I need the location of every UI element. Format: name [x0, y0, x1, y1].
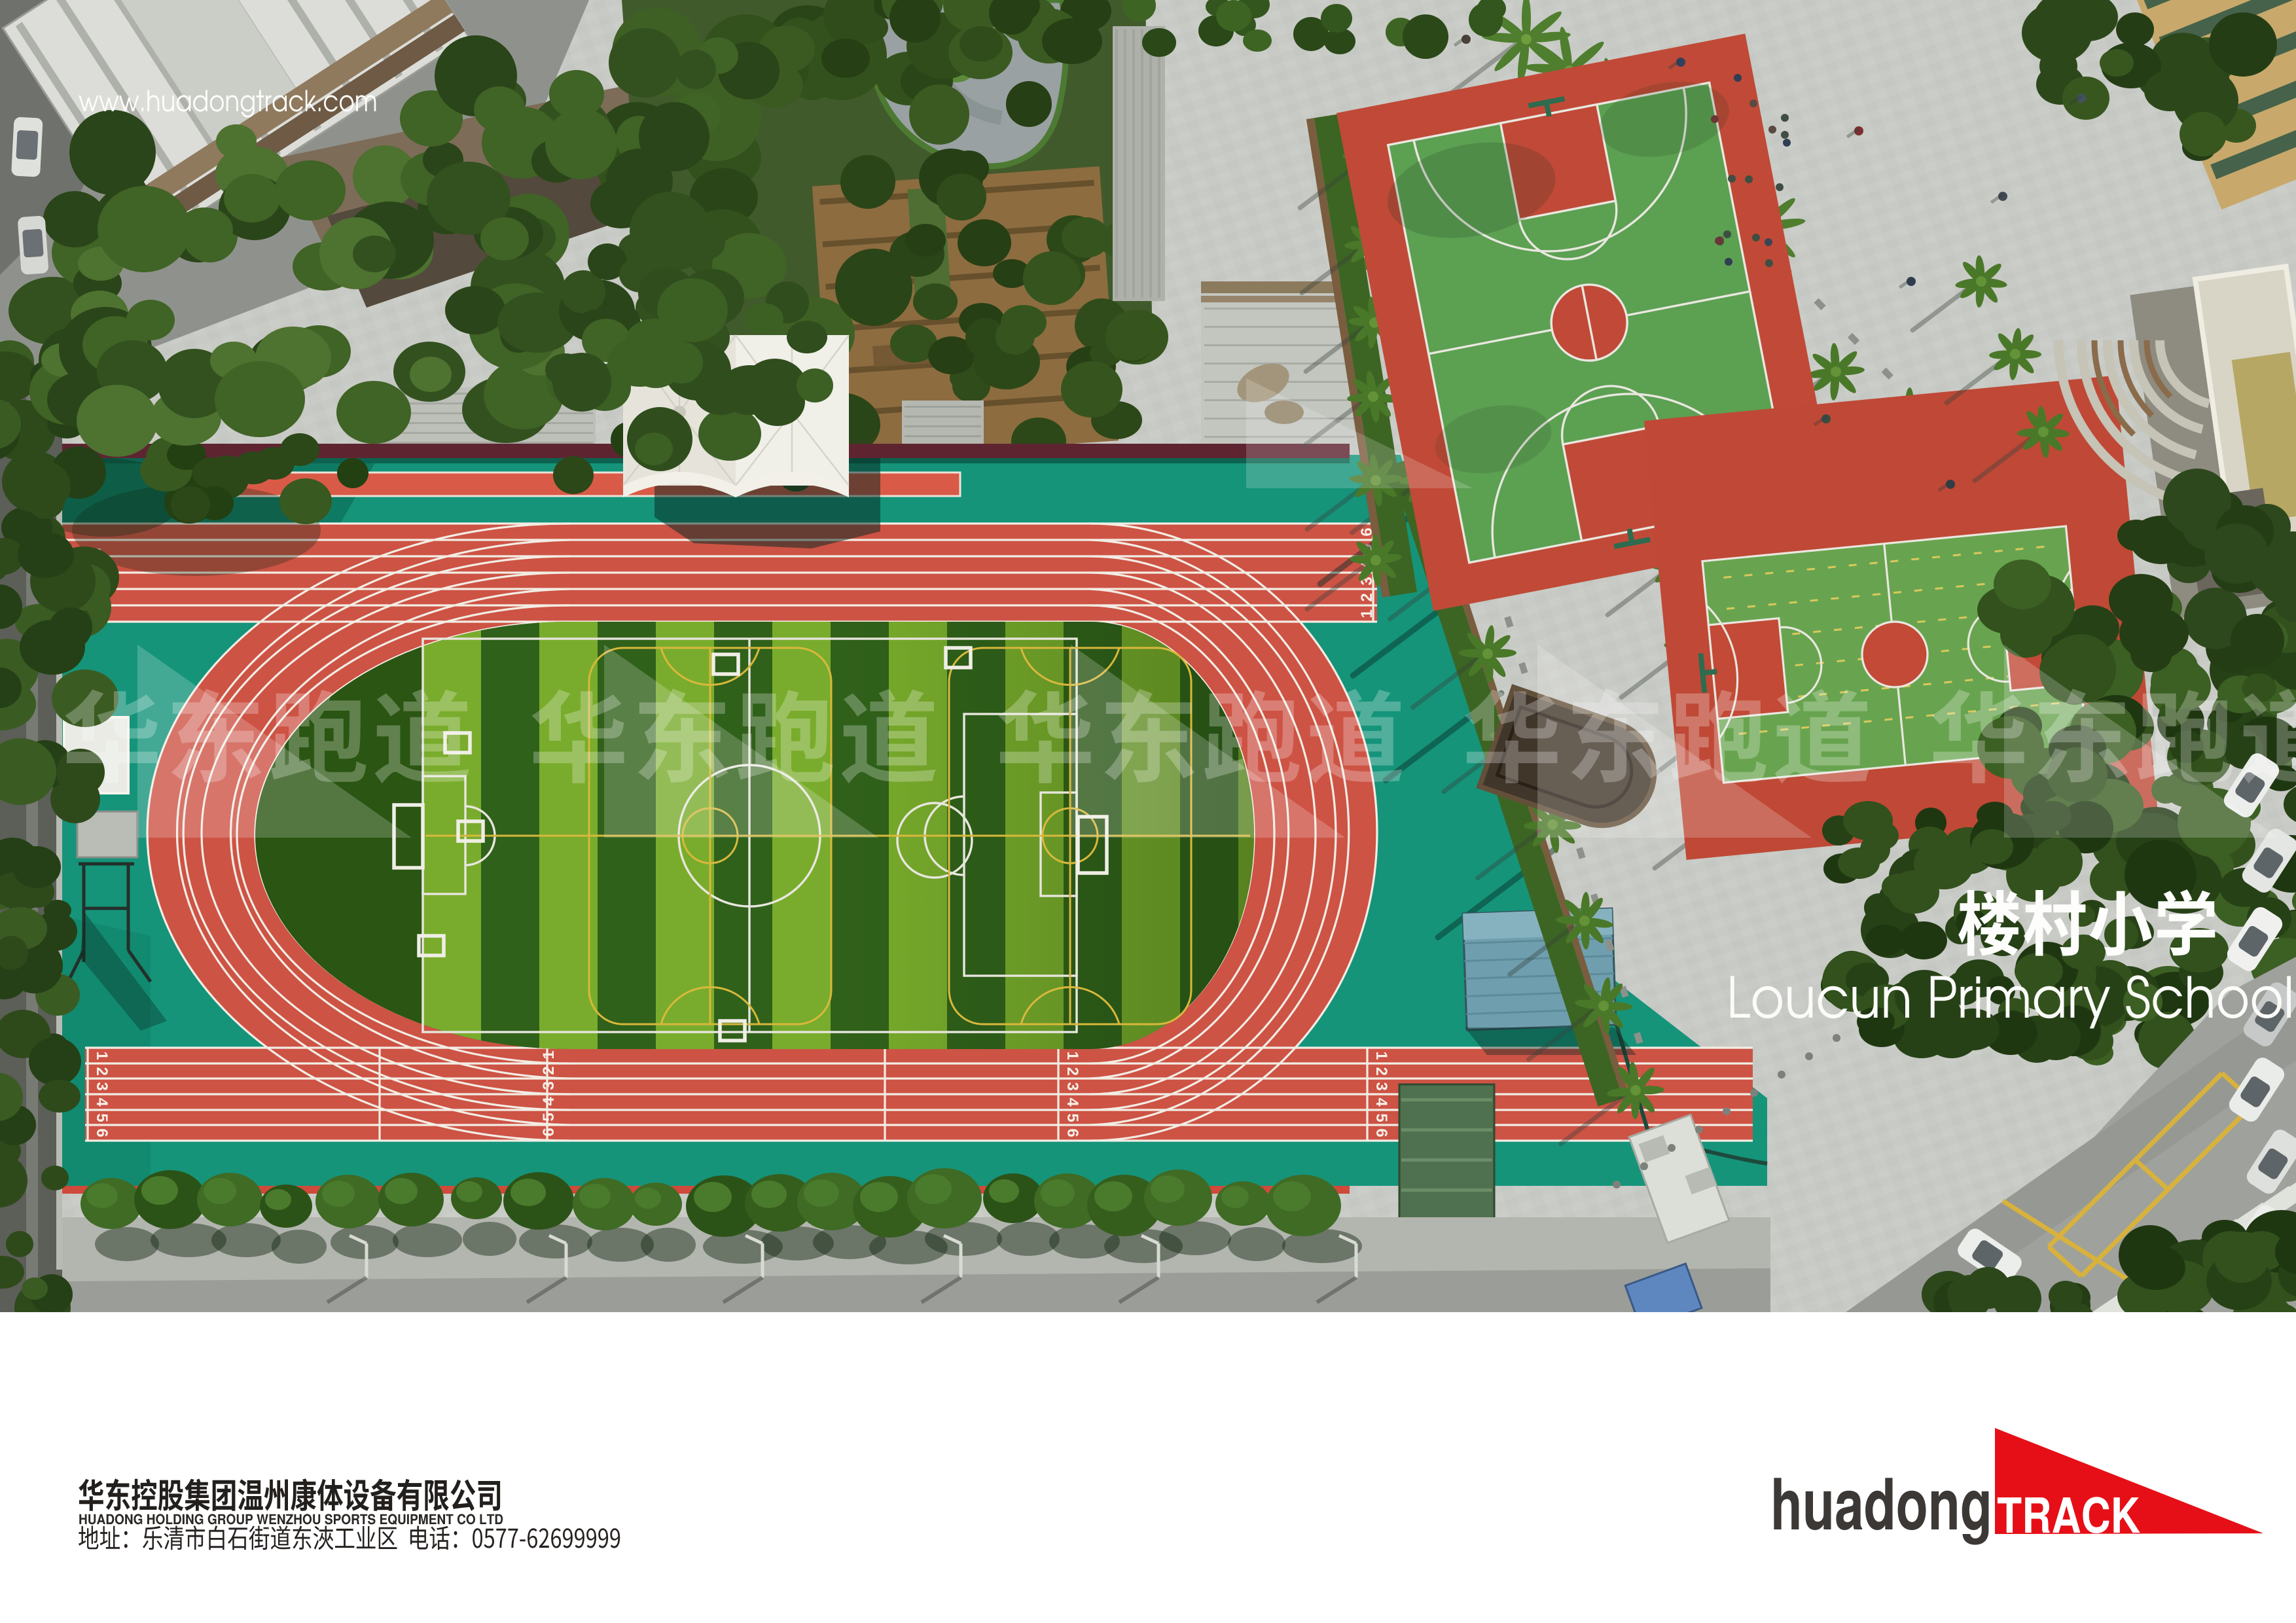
svg-text:4: 4 — [1372, 1097, 1390, 1107]
svg-text:3: 3 — [1372, 1082, 1390, 1090]
svg-text:2: 2 — [540, 1066, 558, 1075]
svg-text:1: 1 — [1372, 1051, 1390, 1060]
svg-text:4: 4 — [540, 1097, 558, 1106]
svg-text:5: 5 — [1372, 1113, 1390, 1122]
svg-text:1: 1 — [540, 1050, 558, 1059]
svg-text:6: 6 — [1372, 1128, 1390, 1137]
svg-text:6: 6 — [1064, 1128, 1081, 1137]
svg-text:2: 2 — [1372, 1067, 1390, 1075]
svg-text:4: 4 — [1064, 1097, 1081, 1107]
svg-text:5: 5 — [93, 1113, 111, 1122]
svg-text:2: 2 — [1064, 1067, 1081, 1075]
svg-text:1: 1 — [93, 1051, 111, 1060]
svg-text:3: 3 — [540, 1081, 558, 1090]
svg-text:5: 5 — [540, 1113, 558, 1121]
svg-text:2: 2 — [1358, 593, 1376, 601]
svg-text:6: 6 — [540, 1128, 558, 1136]
svg-text:6: 6 — [93, 1128, 111, 1137]
svg-text:1: 1 — [1064, 1051, 1081, 1060]
svg-text:5: 5 — [1064, 1113, 1081, 1122]
svg-text:1: 1 — [1358, 609, 1376, 618]
svg-text:4: 4 — [93, 1097, 111, 1107]
svg-text:2: 2 — [93, 1067, 111, 1075]
svg-text:3: 3 — [1064, 1082, 1081, 1090]
svg-text:3: 3 — [93, 1082, 111, 1090]
